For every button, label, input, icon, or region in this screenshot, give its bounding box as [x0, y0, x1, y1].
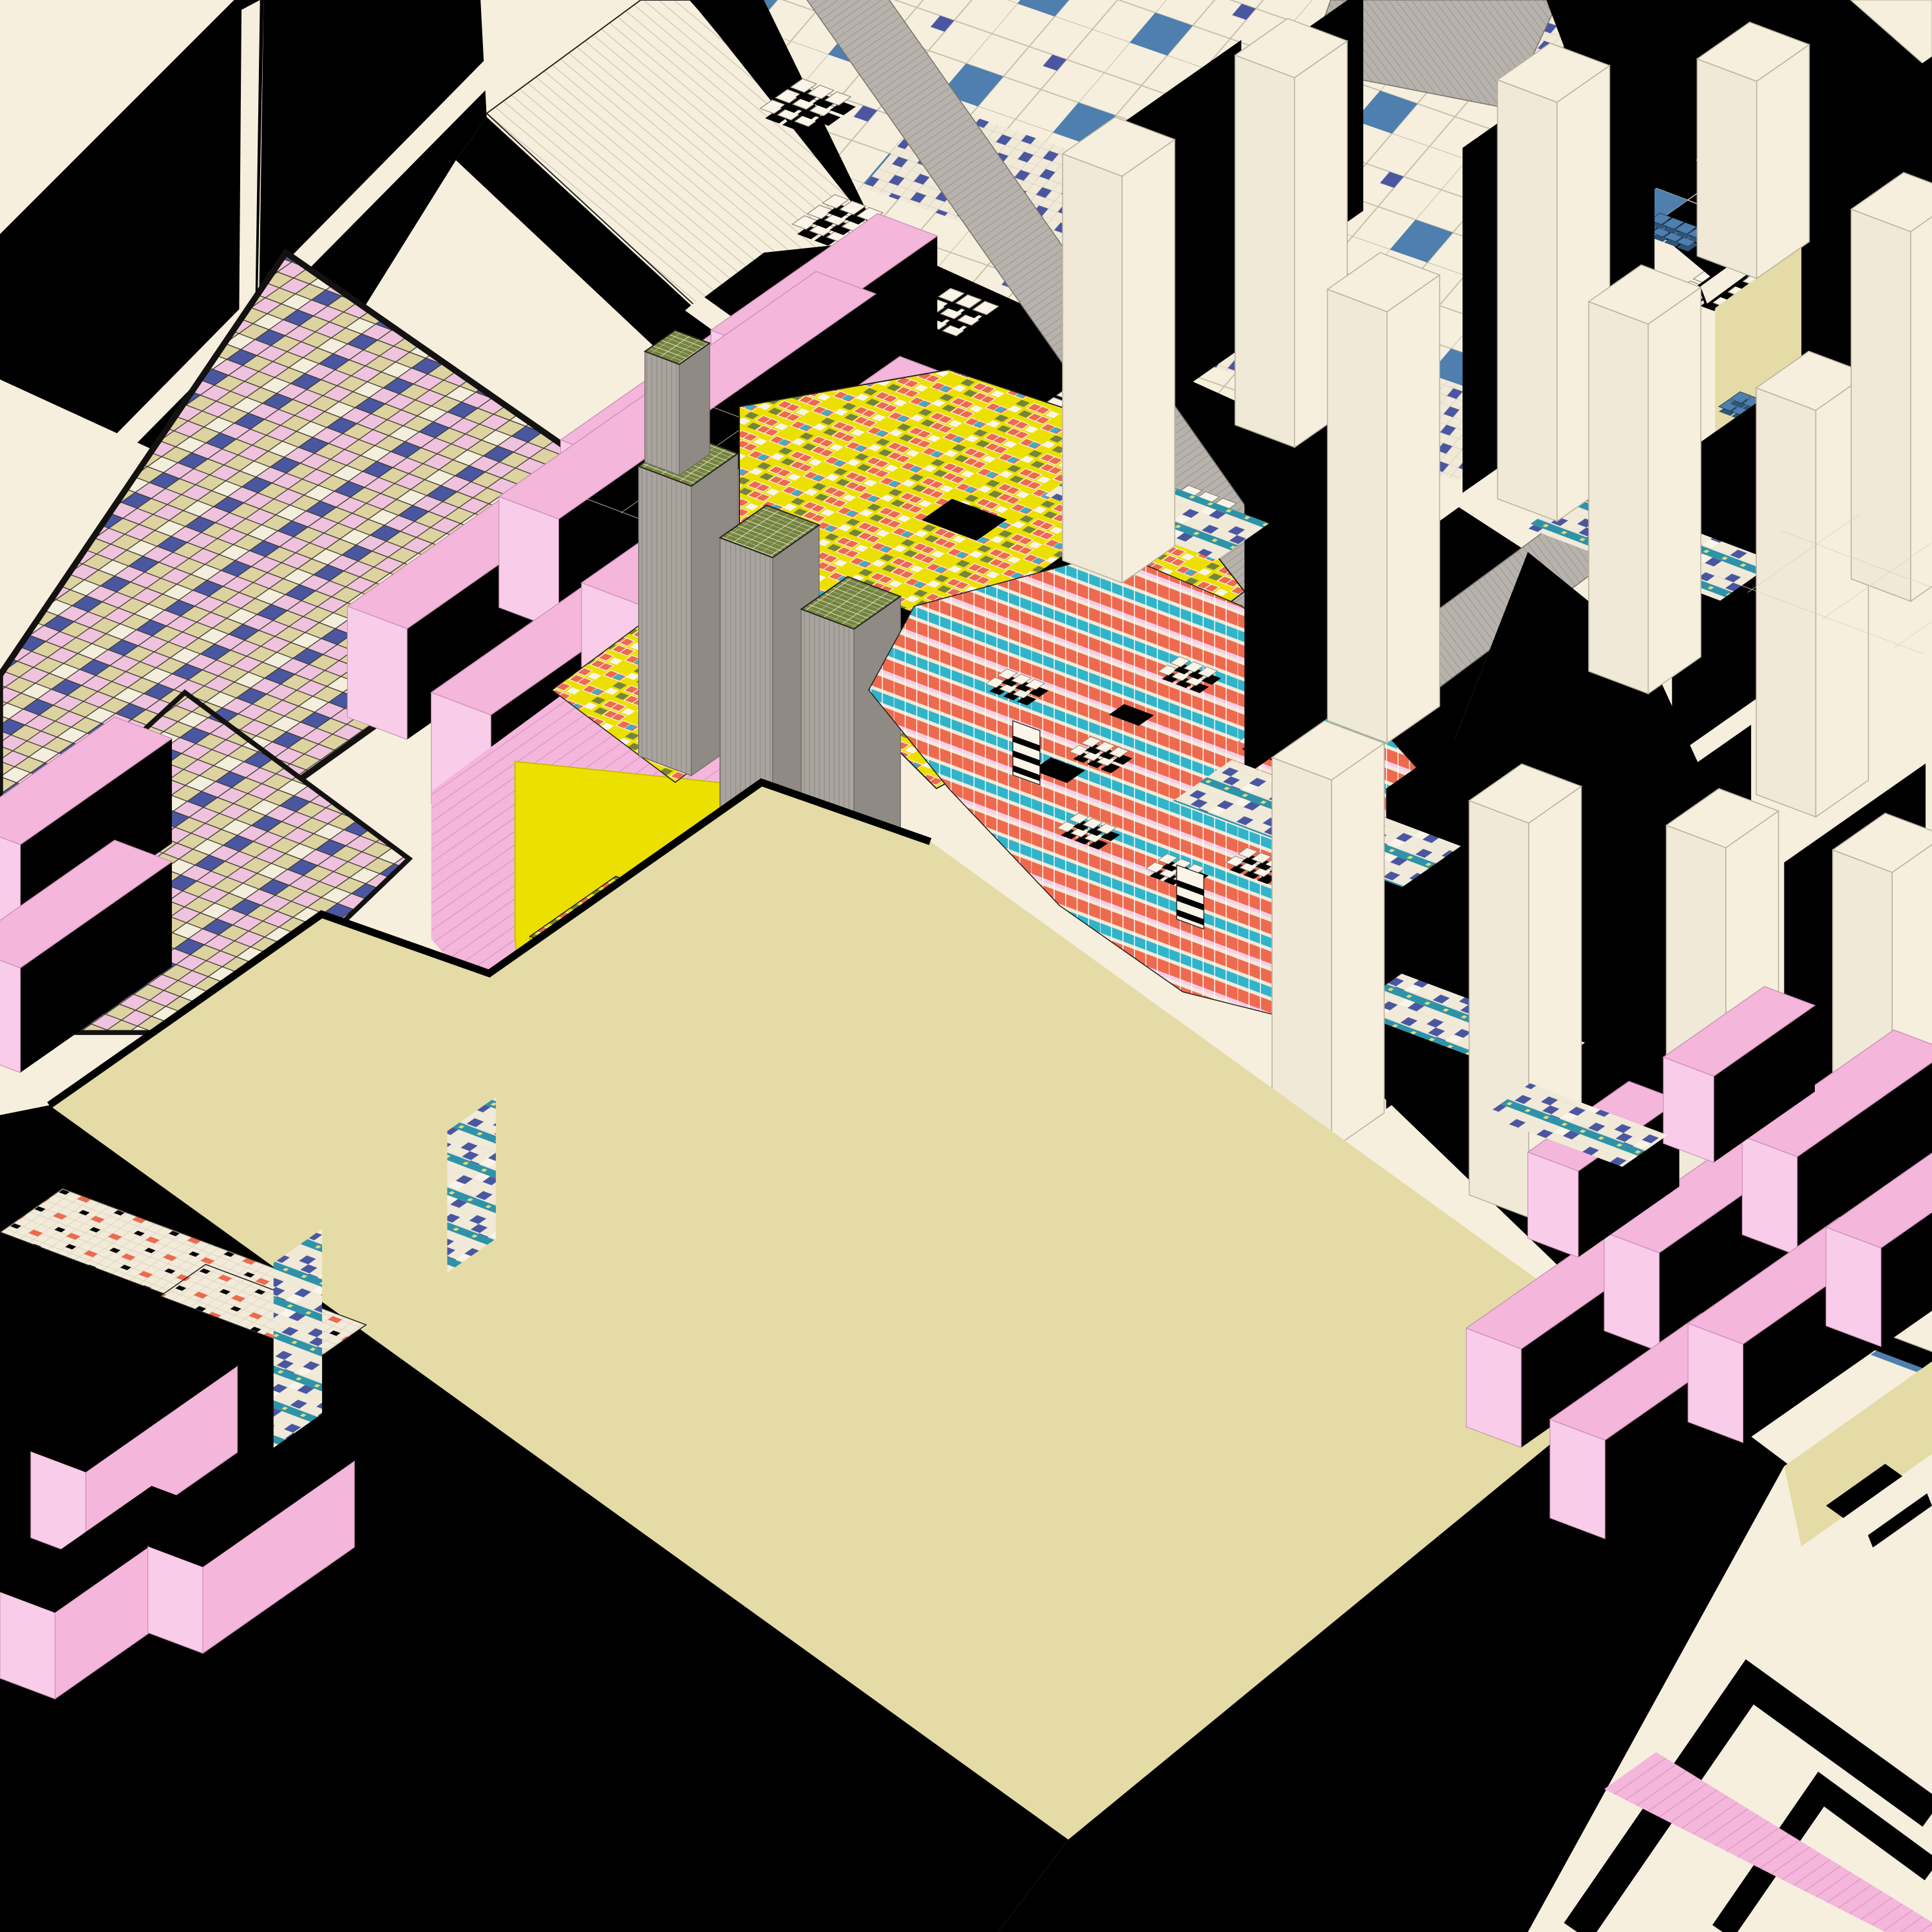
artwork-canvas [0, 0, 1932, 1932]
isometric-artwork [0, 0, 1932, 1932]
speckle-pier-1 [274, 1229, 322, 1448]
gray-tower-small [645, 330, 709, 475]
